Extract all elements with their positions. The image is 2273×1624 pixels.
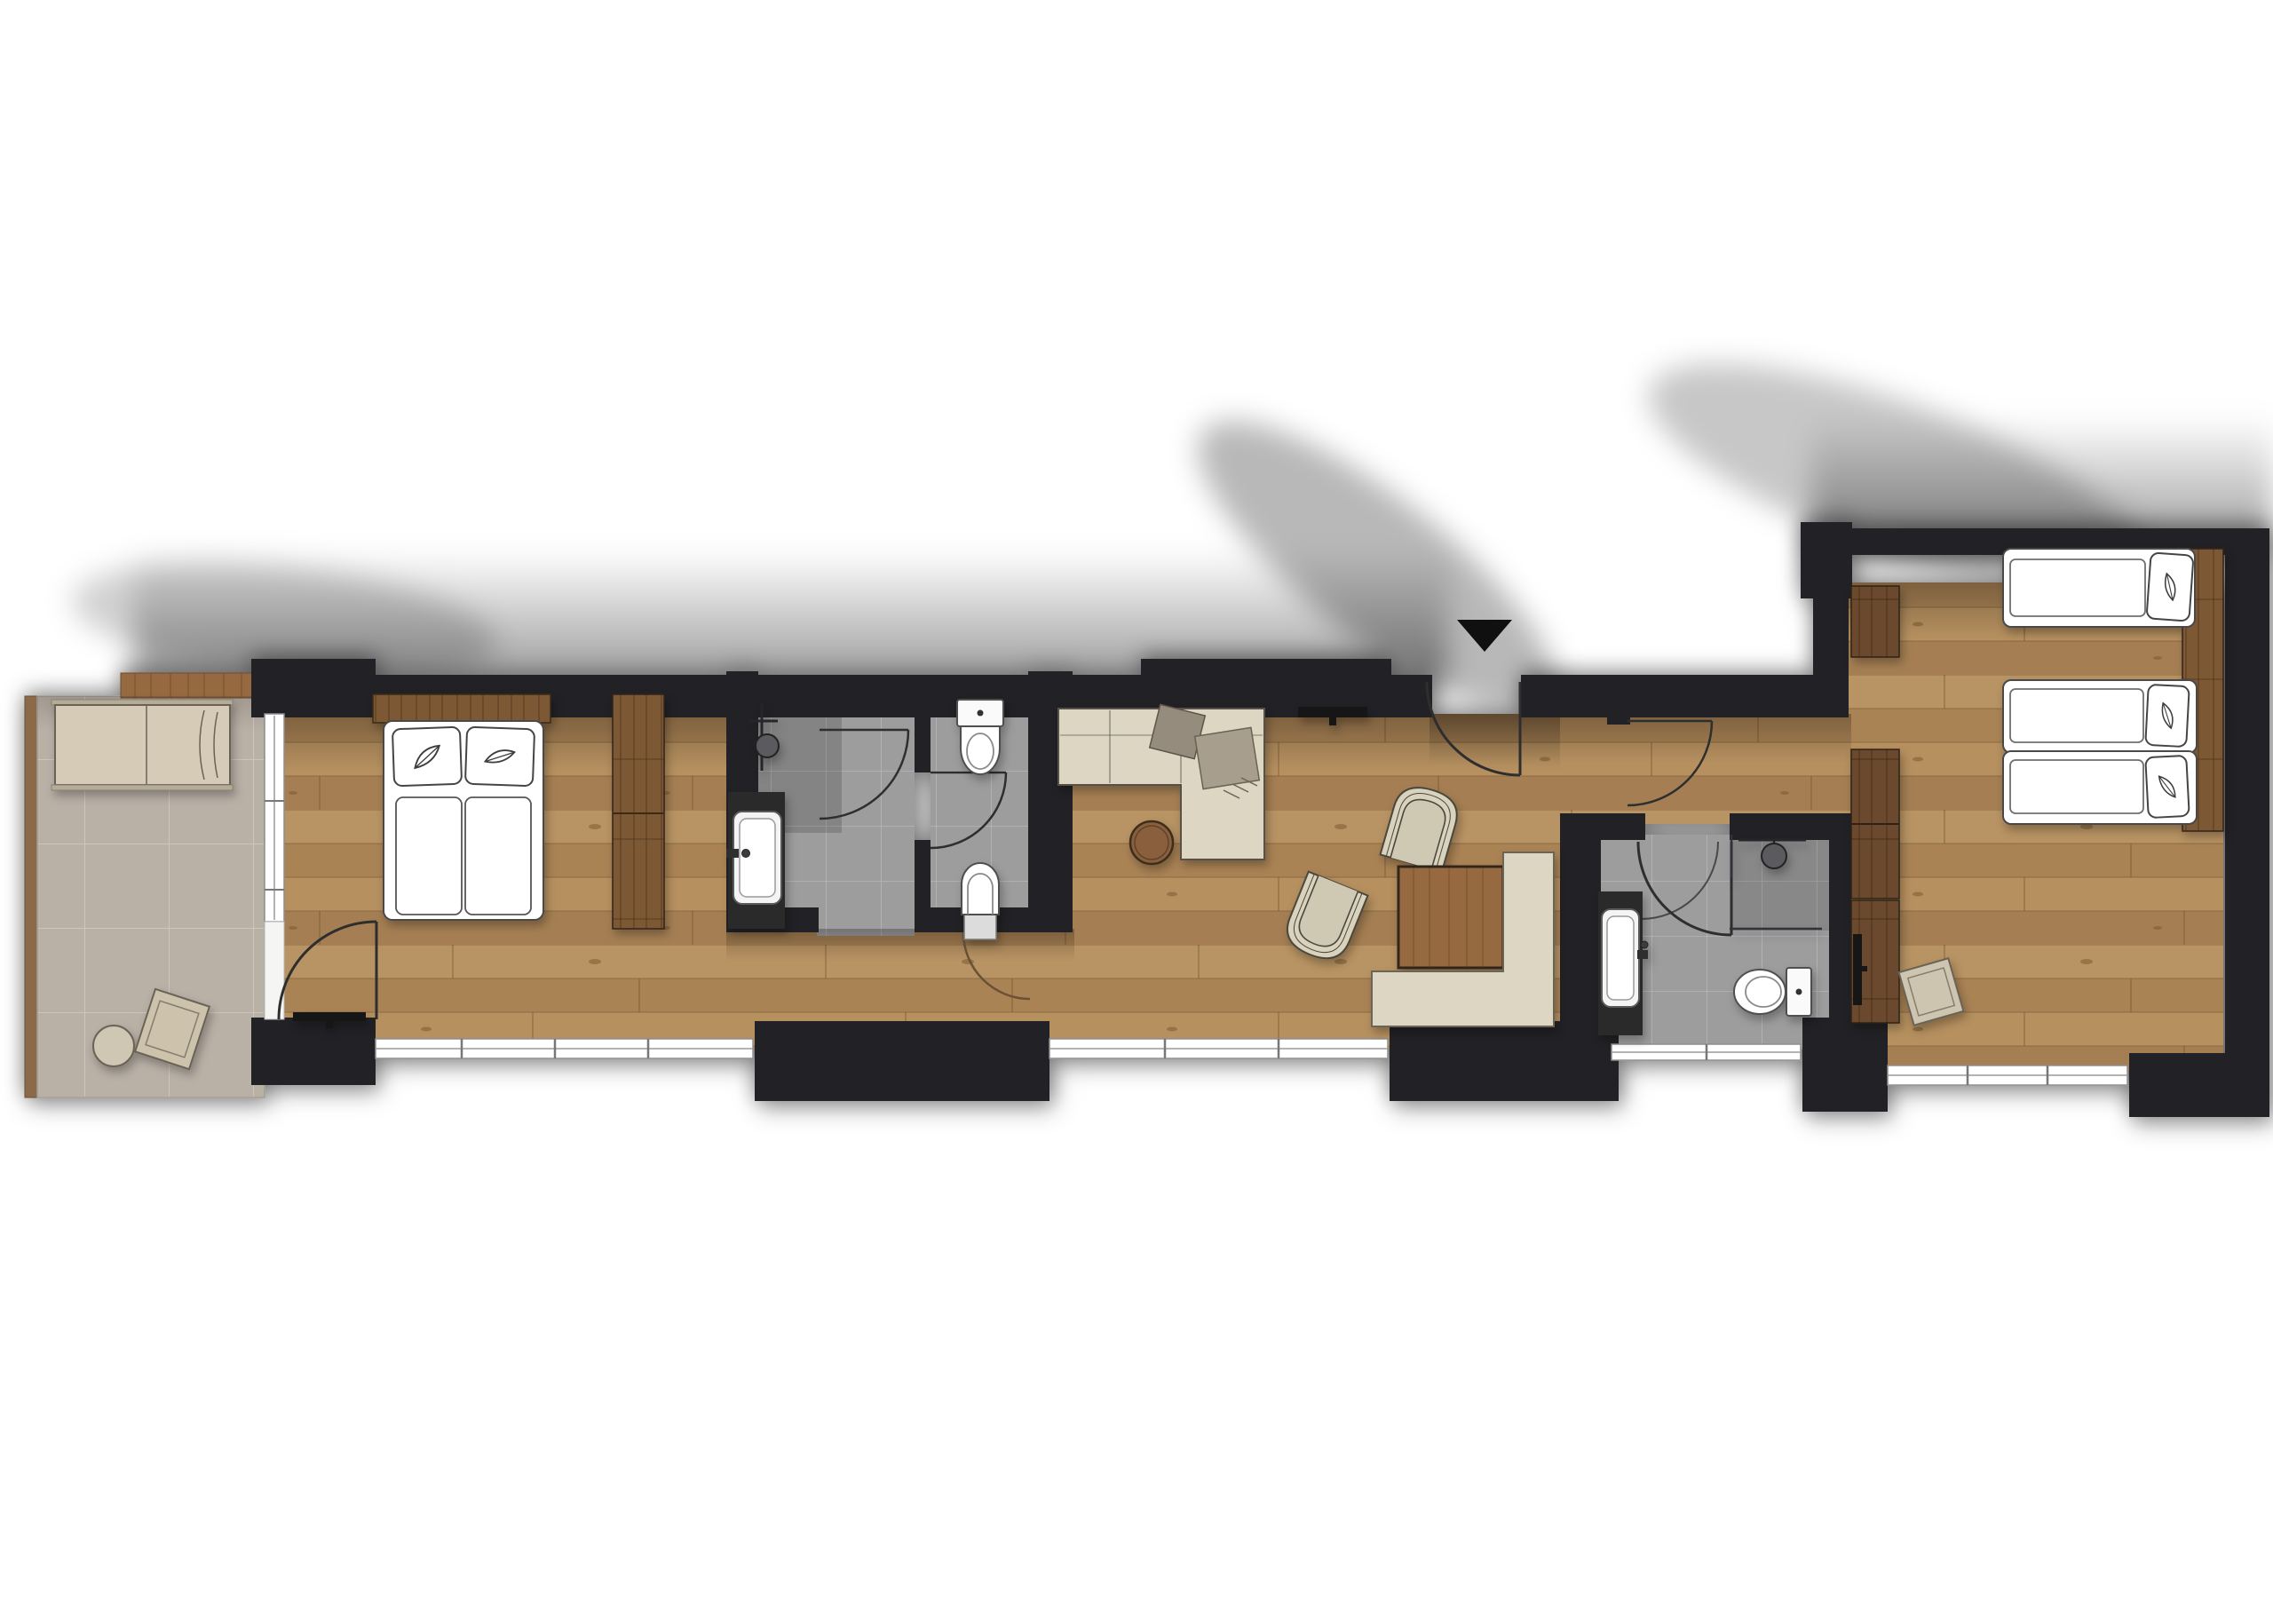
bedroom1-tv-stand — [326, 1021, 333, 1028]
living-tv-stand — [1329, 717, 1336, 725]
wall-pier-nook-bottom — [1390, 1021, 1619, 1101]
terrace-wood-edge — [25, 696, 37, 1097]
basin1-faucet-knob — [742, 850, 750, 858]
wall-bedroom2-bottom-pier — [1802, 1018, 1888, 1112]
bedroom2-floor — [1849, 582, 2223, 1070]
terrace-wood-strip — [121, 673, 263, 698]
bedroom2-bed-b-mattress — [2010, 689, 2143, 742]
sofa-throw-blanket — [1195, 727, 1260, 788]
shower1-head — [756, 734, 779, 757]
bedroom2-bed-c-mattress — [2010, 760, 2143, 813]
basin1-inner — [740, 819, 775, 897]
basin2-inner — [1607, 916, 1634, 1000]
lounger-rail-bottom — [51, 785, 233, 790]
coffee-table — [1130, 821, 1173, 864]
terrace-side-table — [93, 1026, 134, 1066]
basin1-faucet — [726, 849, 739, 858]
bedroom1-duvet-right — [465, 797, 531, 915]
bedroom2-bed-a-mattress — [2010, 559, 2145, 616]
bedroom2-cabinet-a — [1851, 586, 1899, 657]
toilet2-base — [964, 915, 996, 939]
basin2-faucet — [1637, 950, 1648, 959]
bedroom1-tv-bar — [293, 1012, 366, 1021]
wall-bath2-right — [1829, 813, 1851, 1019]
toilet1-button — [978, 710, 984, 717]
wall-bath2-top-a — [1560, 813, 1645, 840]
wall-bath1-stub-bottom — [915, 840, 931, 911]
wall-bath2-left — [1560, 817, 1601, 1051]
wall-bedroom2-corner — [2129, 1053, 2269, 1117]
wall-top-left-pier — [251, 659, 376, 717]
wall-pier-mid-bottom — [755, 1021, 1049, 1101]
floor-plan-svg — [0, 0, 2273, 1624]
wall-bedroom2-right — [2225, 528, 2269, 1110]
wall-top-entry-left — [1390, 675, 1432, 717]
bedroom2-tv-bar — [1853, 934, 1862, 1005]
shower2-head — [1762, 844, 1786, 868]
wall-bath1-stub-top — [915, 698, 931, 772]
corridor-wall-shade — [726, 929, 1074, 961]
basin2-faucet-knob — [1641, 941, 1648, 948]
bedroom1-headboard — [373, 694, 550, 723]
floor-plan-stage — [0, 0, 2273, 1624]
wall-top-hall-right — [1718, 675, 1813, 717]
bedroom1-duvet-left — [396, 797, 462, 915]
bedroom1-wardrobe — [613, 694, 664, 929]
living-tv-bar — [1298, 707, 1367, 717]
sun-lounger — [55, 705, 230, 785]
toilet3-button — [1796, 989, 1802, 995]
wall-pier-terrace-corner — [251, 1018, 376, 1085]
dining-table — [1398, 867, 1503, 968]
bedroom2-tv-stand — [1862, 966, 1867, 971]
wall-hall-hinge-pier — [1607, 675, 1630, 725]
